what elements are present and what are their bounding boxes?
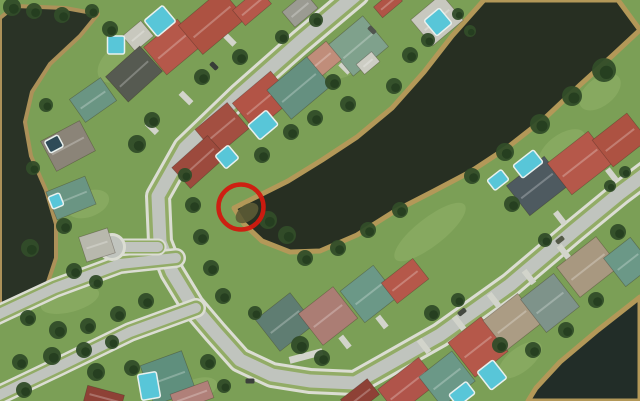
tree-shadow	[17, 359, 26, 368]
satellite-image	[0, 0, 640, 401]
tree-shadow	[543, 238, 551, 246]
tree-shadow	[27, 245, 37, 255]
tree-shadow	[509, 201, 518, 210]
tree-shadow	[407, 52, 416, 61]
tree-shadow	[85, 323, 94, 332]
tree-shadow	[497, 342, 506, 351]
tree-shadow	[426, 38, 434, 46]
tree-shadow	[456, 12, 463, 19]
tree-shadow	[615, 229, 624, 238]
tree-shadow	[149, 117, 158, 126]
tree-shadow	[280, 35, 288, 43]
tree-shadow	[129, 365, 138, 374]
tree-shadow	[44, 103, 52, 111]
tree-shadow	[502, 149, 512, 159]
swimming-pool	[108, 36, 125, 54]
tree-shadow	[31, 166, 39, 174]
tree-shadow	[90, 9, 98, 17]
tree-shadow	[468, 29, 475, 36]
tree-shadow	[302, 255, 311, 264]
tree-shadow	[49, 353, 59, 363]
tree-shadow	[569, 93, 580, 104]
tree-shadow	[429, 310, 438, 319]
tree-shadow	[220, 293, 229, 302]
tree-shadow	[199, 74, 208, 83]
tree-shadow	[198, 234, 207, 243]
tree-shadow	[59, 12, 68, 21]
tree-shadow	[31, 8, 40, 17]
tree-shadow	[21, 387, 30, 396]
tree-shadow	[222, 384, 230, 392]
tree-shadow	[61, 223, 70, 232]
tree-shadow	[25, 315, 34, 324]
tree-shadow	[365, 227, 374, 236]
aerial-scene	[0, 0, 640, 401]
tree-shadow	[319, 355, 328, 364]
tree-shadow	[456, 298, 464, 306]
tree-shadow	[345, 101, 354, 110]
tree-shadow	[314, 18, 322, 26]
tree-shadow	[563, 327, 572, 336]
tree-shadow	[253, 311, 261, 319]
car	[246, 379, 255, 384]
tree-shadow	[110, 340, 118, 348]
tree-shadow	[391, 83, 400, 92]
tree-shadow	[312, 115, 321, 124]
tree-shadow	[115, 311, 124, 320]
swimming-pool	[137, 372, 160, 401]
tree-shadow	[93, 369, 103, 379]
tree-shadow	[297, 342, 307, 352]
tree-shadow	[469, 173, 478, 182]
tree-shadow	[608, 184, 615, 191]
tree-shadow	[134, 141, 144, 151]
tree-shadow	[259, 152, 268, 161]
tree-shadow	[208, 265, 217, 274]
tree-shadow	[397, 207, 406, 216]
tree-shadow	[9, 4, 19, 14]
tree-shadow	[284, 232, 294, 242]
tree-shadow	[623, 170, 630, 177]
tree-shadow	[330, 79, 339, 88]
tree-shadow	[81, 347, 90, 356]
tree-shadow	[288, 129, 297, 138]
tree-shadow	[593, 297, 602, 306]
tree-shadow	[107, 26, 116, 35]
tree-shadow	[600, 66, 613, 79]
tree-shadow	[335, 245, 344, 254]
tree-shadow	[530, 347, 539, 356]
tree-shadow	[265, 217, 275, 227]
tree-shadow	[143, 298, 152, 307]
tree-shadow	[94, 280, 102, 288]
tree-shadow	[537, 121, 548, 132]
tree-shadow	[71, 268, 80, 277]
tree-shadow	[237, 54, 246, 63]
tree-shadow	[183, 173, 191, 181]
tree-shadow	[55, 327, 65, 337]
tree-shadow	[190, 202, 199, 211]
tree-shadow	[205, 359, 214, 368]
